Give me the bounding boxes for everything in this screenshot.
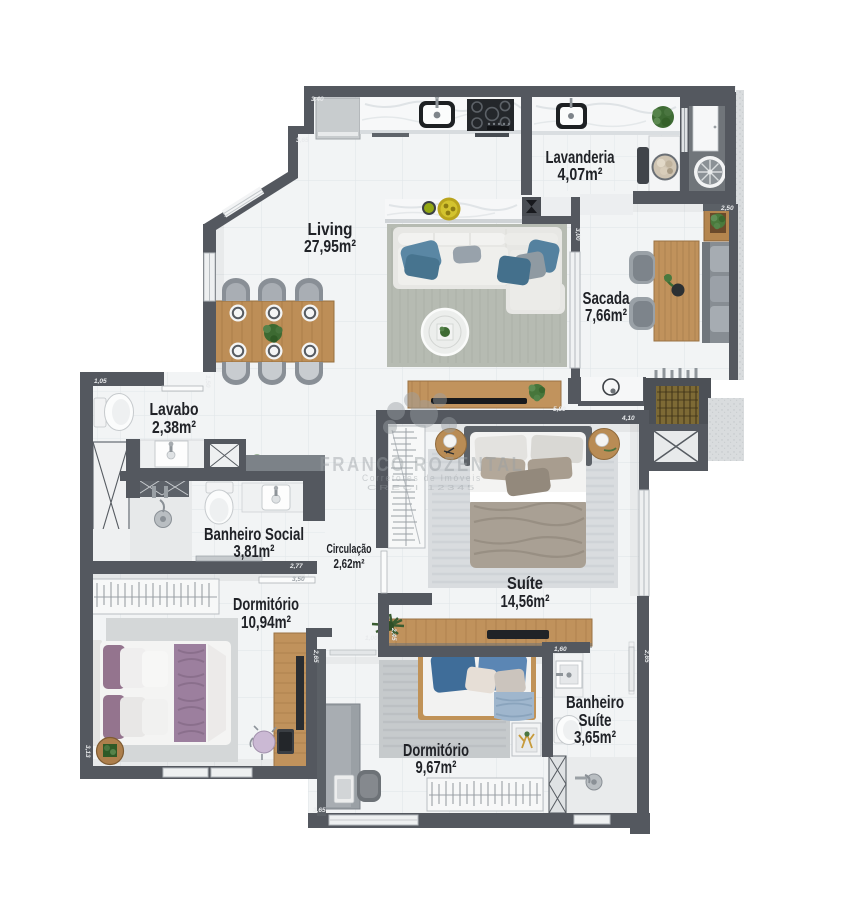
svg-text:2,65: 2,65 [312, 649, 319, 663]
svg-text:Dormitório: Dormitório [233, 594, 299, 614]
svg-text:1,60: 1,60 [554, 646, 567, 653]
svg-text:2,62m²: 2,62m² [334, 557, 365, 571]
svg-text:3,65: 3,65 [296, 137, 309, 144]
svg-text:2,45: 2,45 [390, 627, 397, 641]
svg-text:14,56m²: 14,56m² [501, 591, 550, 611]
svg-text:5,80: 5,80 [553, 406, 566, 413]
svg-text:2,38m²: 2,38m² [152, 417, 196, 437]
svg-text:1,50: 1,50 [204, 375, 211, 388]
svg-text:9,67m²: 9,67m² [416, 757, 457, 777]
svg-text:1,00: 1,00 [365, 635, 378, 642]
svg-text:10,94m²: 10,94m² [241, 612, 291, 632]
svg-text:3,65: 3,65 [313, 807, 326, 814]
svg-text:27,95m²: 27,95m² [304, 236, 356, 256]
svg-text:4,07m²: 4,07m² [558, 164, 603, 184]
svg-text:3,40: 3,40 [311, 96, 324, 103]
svg-text:3,13: 3,13 [84, 745, 91, 758]
svg-text:3,50: 3,50 [292, 576, 305, 583]
svg-text:Circulação: Circulação [327, 542, 372, 556]
svg-text:3,00: 3,00 [574, 228, 581, 241]
svg-text:2,77: 2,77 [289, 563, 303, 570]
svg-text:4,10: 4,10 [621, 415, 635, 422]
svg-text:1,05: 1,05 [94, 378, 107, 385]
svg-text:CRECI 12345: CRECI 12345 [367, 483, 477, 492]
svg-text:3,81m²: 3,81m² [234, 541, 275, 561]
svg-text:3,65m²: 3,65m² [574, 727, 616, 747]
svg-text:2,65: 2,65 [643, 649, 650, 663]
svg-text:2,50: 2,50 [720, 205, 734, 212]
svg-text:Suíte: Suíte [507, 573, 543, 593]
svg-text:7,66m²: 7,66m² [585, 305, 627, 325]
svg-text:Banheiro: Banheiro [566, 692, 624, 712]
svg-text:Lavabo: Lavabo [150, 399, 199, 419]
